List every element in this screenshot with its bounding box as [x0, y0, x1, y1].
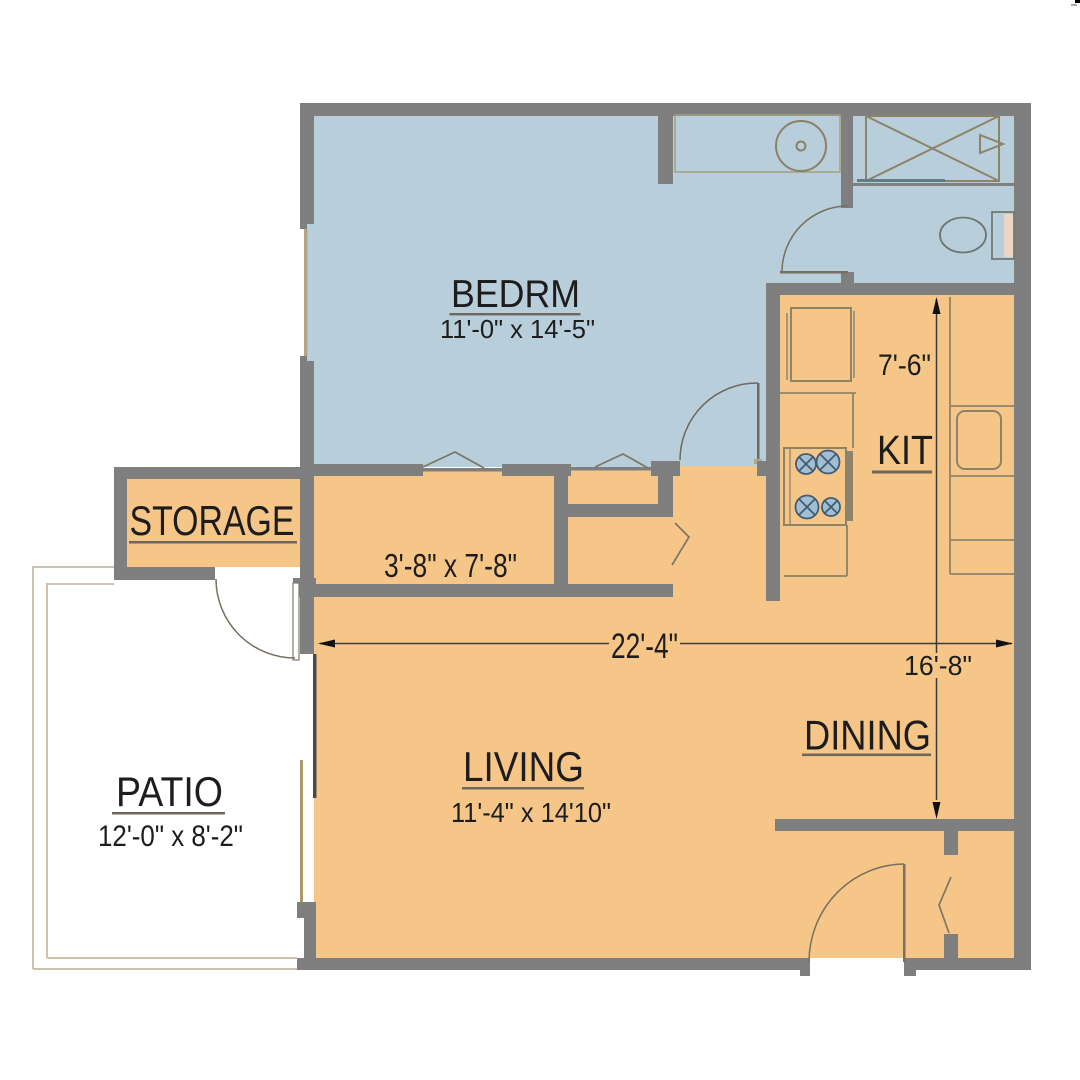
svg-text:16'-8": 16'-8": [904, 650, 972, 681]
svg-text:KIT: KIT: [877, 427, 933, 473]
svg-text:BEDRM: BEDRM: [451, 273, 580, 316]
svg-text:LIVING: LIVING: [463, 743, 584, 790]
svg-text:11'-4" x 14'10": 11'-4" x 14'10": [451, 797, 611, 828]
svg-text:STORAGE: STORAGE: [130, 497, 295, 544]
svg-text:3'-8" x 7'-8": 3'-8" x 7'-8": [384, 547, 517, 584]
svg-text:7'-6": 7'-6": [878, 349, 931, 382]
svg-text:22'-4": 22'-4": [611, 627, 678, 666]
svg-text:DINING: DINING: [804, 712, 931, 759]
svg-text:11'-0" x 14'-5": 11'-0" x 14'-5": [440, 314, 595, 344]
svg-text:PATIO: PATIO: [116, 768, 223, 815]
svg-text:12'-0" x 8'-2": 12'-0" x 8'-2": [98, 820, 243, 853]
